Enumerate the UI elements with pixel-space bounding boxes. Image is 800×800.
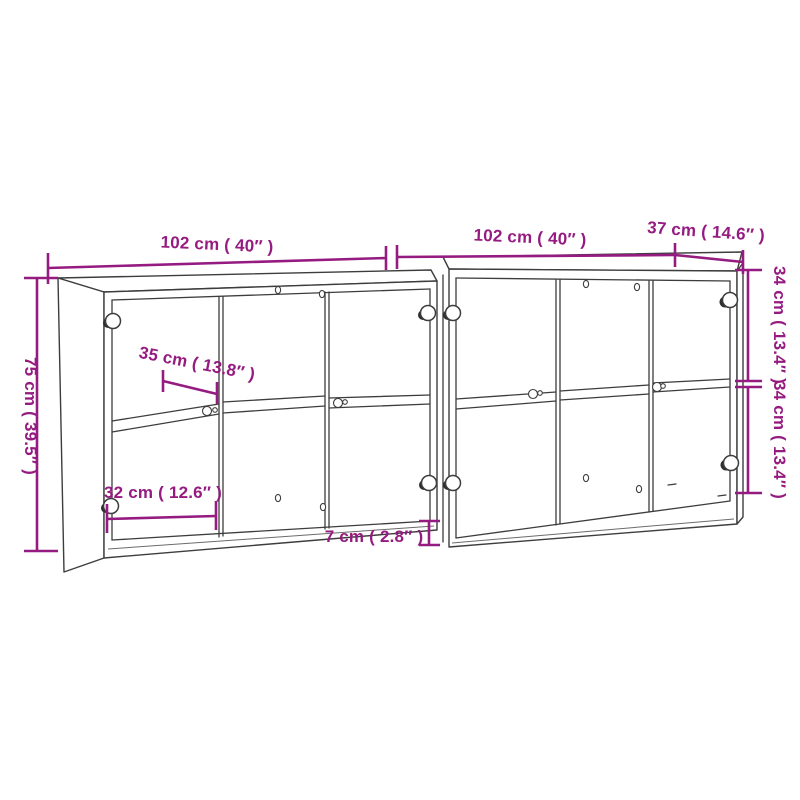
door-knob (106, 314, 121, 329)
peg-hole (275, 286, 280, 293)
dim-label-plinth-height: 7 cm ( 2.8″ ) (325, 527, 424, 547)
dimension-diagram: 102 cm ( 40″ ) 102 cm ( 40″ ) 37 cm ( 14… (0, 0, 800, 800)
peg-hole (320, 503, 325, 510)
dim-label-height: 75 cm ( 39.5″ ) (20, 357, 40, 475)
dim-line-width-left (48, 258, 386, 268)
door-knob (422, 476, 437, 491)
dim-label-lower-compartment-height: 34 cm ( 13.4″ ) (769, 381, 789, 499)
left-cabinet-side (58, 278, 104, 572)
peg-hole (634, 283, 639, 290)
shelf-pin (213, 408, 218, 413)
shelf-pin (653, 383, 662, 392)
shelf-pin (661, 384, 666, 389)
shelf-pin (203, 407, 212, 416)
dim-label-upper-compartment-height: 34 cm ( 13.4″ ) (769, 266, 789, 384)
shelf-pin (334, 399, 343, 408)
shelf-pin (529, 390, 538, 399)
door-knob (446, 306, 461, 321)
door-knob (723, 293, 738, 308)
shelf-pin (343, 400, 348, 405)
door-knob (446, 476, 461, 491)
furniture-line-drawing (0, 0, 800, 800)
peg-hole (275, 494, 280, 501)
shelf-pin (538, 391, 543, 396)
door-knob (421, 306, 436, 321)
right-cabinet-drawing (443, 252, 743, 547)
peg-hole (583, 474, 588, 481)
peg-hole (636, 485, 641, 492)
peg-hole (319, 290, 324, 297)
dim-label-compartment-width: 32 cm ( 12.6″ ) (104, 483, 222, 503)
door-knob (724, 456, 739, 471)
peg-hole (583, 280, 588, 287)
